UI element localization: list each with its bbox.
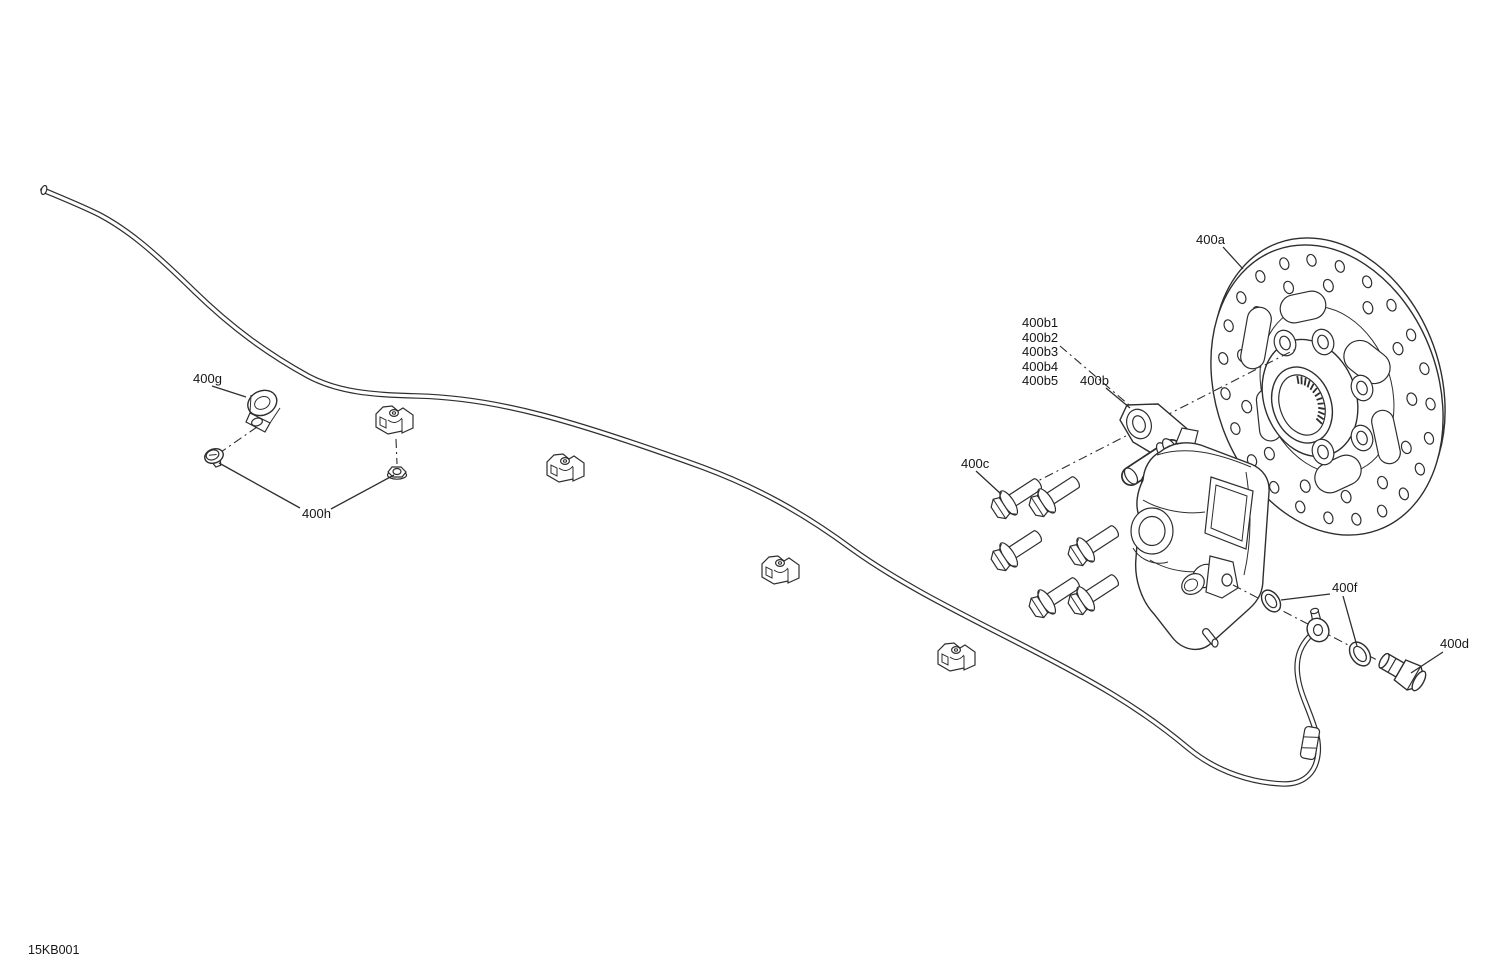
sealing-washer (1345, 638, 1375, 670)
mounting-bolt (1025, 469, 1085, 522)
hose-clamp (244, 386, 281, 432)
callout-400f: 400f (1332, 580, 1358, 595)
diagram-canvas: 400a 400b1 400b2 400b3 400b4 400b5 400b … (0, 0, 1500, 972)
parts-diagram-page: 400a 400b1 400b2 400b3 400b4 400b5 400b … (0, 0, 1500, 972)
hose-clip (762, 556, 799, 584)
caliper-banjo-lug (1206, 556, 1238, 598)
leader-400g (212, 386, 246, 397)
leader-400f-2 (1343, 596, 1357, 646)
callout-400a: 400a (1196, 232, 1226, 247)
callout-400b1: 400b1 (1022, 315, 1058, 330)
drawing-code: 15KB001 (28, 943, 79, 957)
leader-400h-2 (331, 475, 394, 509)
callout-400b2: 400b2 (1022, 330, 1058, 345)
clamp-screw (203, 446, 227, 469)
hose-clip (547, 454, 584, 482)
callout-400c: 400c (961, 456, 990, 471)
hose-end-fitting (1300, 608, 1333, 761)
leader-400b (1106, 388, 1130, 408)
hose-clips (376, 406, 975, 671)
axis-clamp-to-screw (221, 427, 257, 452)
banjo-bolt (1374, 647, 1430, 695)
callout-400d: 400d (1440, 636, 1469, 651)
callout-400b: 400b (1080, 373, 1109, 388)
mounting-bolts (987, 469, 1124, 623)
mounting-bolt (1064, 518, 1124, 571)
hose-clip (376, 406, 413, 434)
hose-clip (938, 643, 975, 671)
callout-400b4: 400b4 (1022, 359, 1058, 374)
mounting-bolt (1064, 567, 1124, 620)
axis-clip-to-nut (396, 439, 397, 464)
leader-400h-1 (219, 463, 300, 508)
callout-400b3: 400b3 (1022, 344, 1058, 359)
callout-400g: 400g (193, 371, 222, 386)
leader-400a (1223, 247, 1243, 269)
leader-400c (976, 471, 1001, 494)
callout-400h: 400h (302, 506, 331, 521)
leader-400d (1411, 652, 1443, 673)
brake-caliper (1131, 443, 1269, 650)
leader-400f-1 (1281, 594, 1330, 600)
mounting-bolt (987, 523, 1047, 576)
callout-400b5: 400b5 (1022, 373, 1058, 388)
